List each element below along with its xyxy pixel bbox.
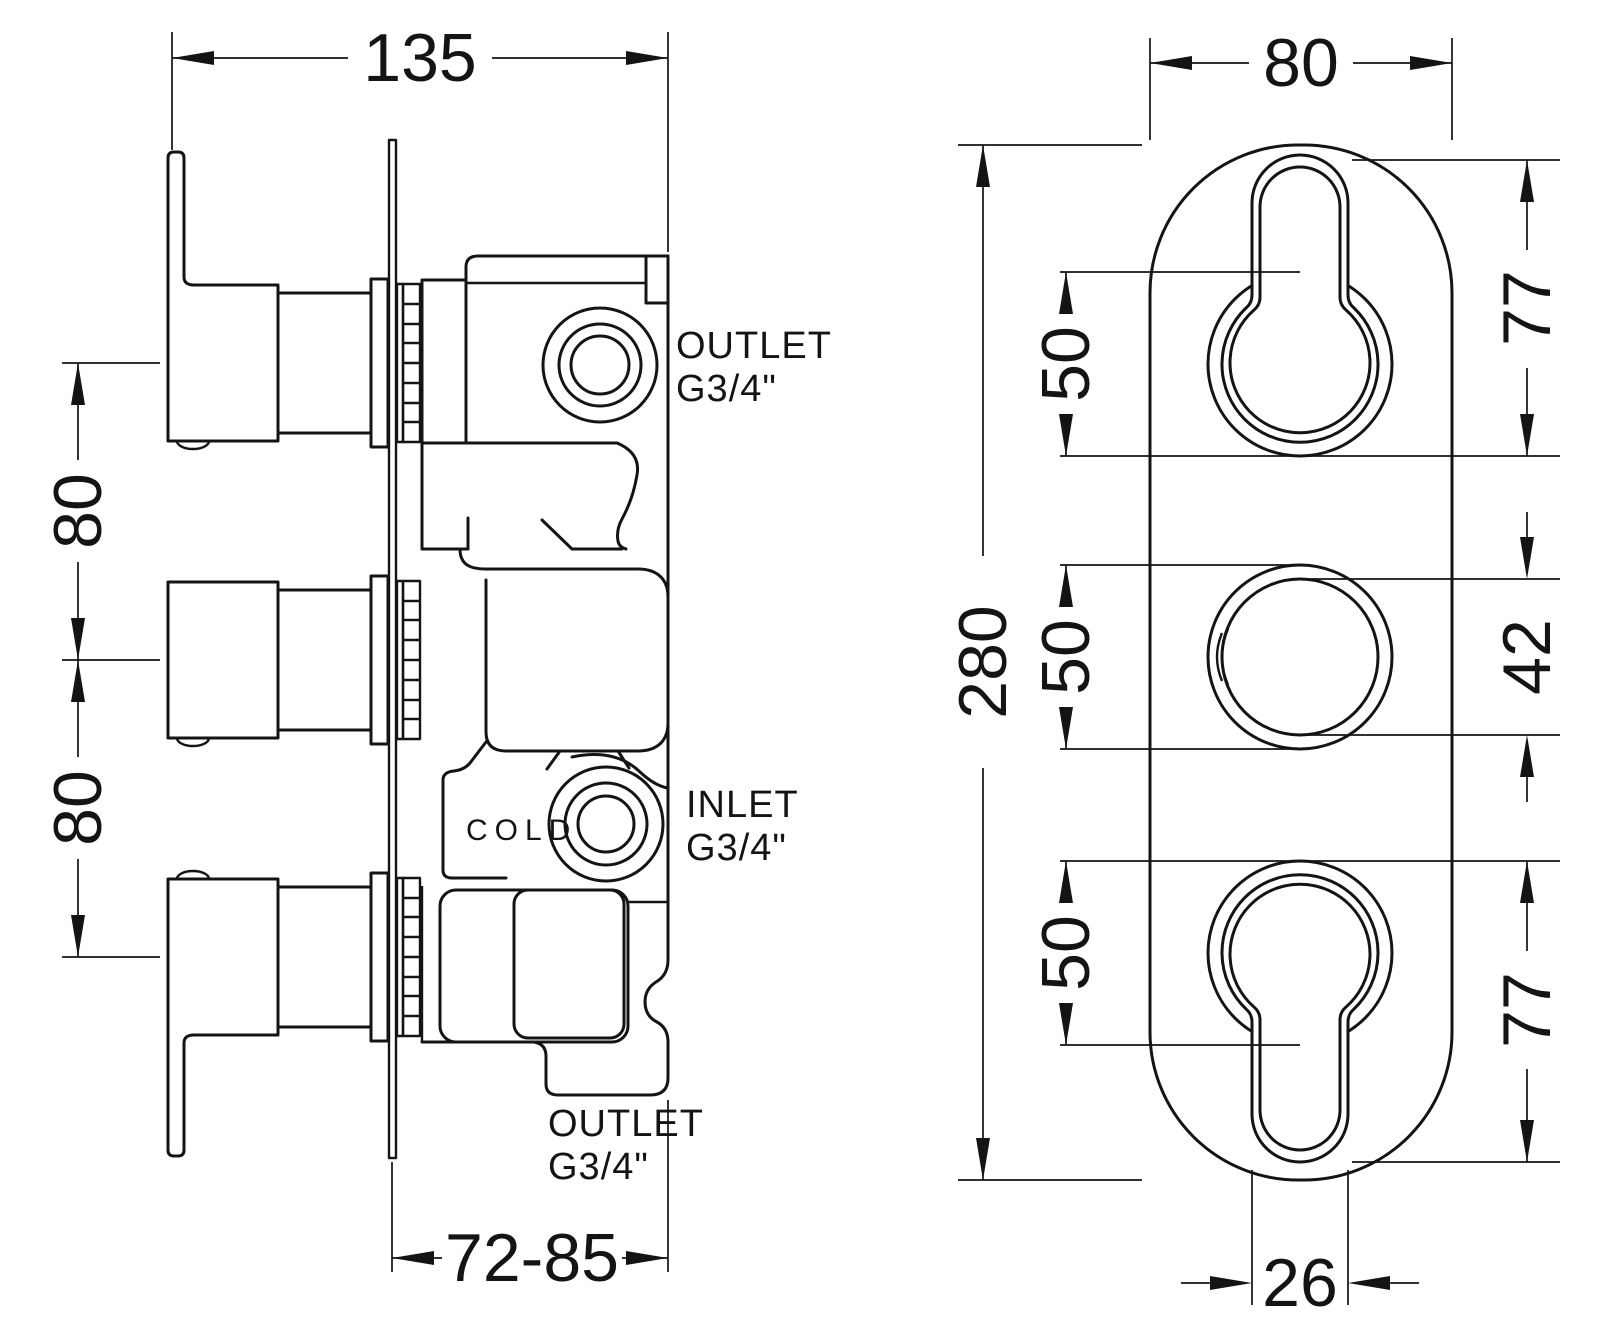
dim-72-85-value: 72-85 — [445, 1220, 619, 1296]
knob-middle-grip-notch — [1217, 629, 1228, 685]
front-view — [1150, 145, 1452, 1180]
outlet-bottom-label-line2: G3/4" — [548, 1146, 649, 1188]
technical-drawing-page: OUTLET G3/4" INLET G3/4" OUTLET G3/4" CO… — [0, 0, 1614, 1329]
side-view: OUTLET G3/4" INLET G3/4" OUTLET G3/4" CO… — [168, 140, 832, 1188]
dim-280-value: 280 — [945, 605, 1021, 718]
dim-50-top-value: 50 — [1028, 326, 1104, 402]
dim-50-bottom-value: 50 — [1028, 915, 1104, 991]
top-housing-outline — [422, 256, 668, 549]
bottom-housing-inner — [514, 890, 624, 1038]
dim-80-plate: 80 — [1150, 25, 1452, 140]
dim-26: 26 — [1181, 1170, 1419, 1321]
handle-top-stem — [278, 293, 371, 433]
upper-transition-curves — [460, 443, 638, 549]
outlet-top-label-line1: OUTLET — [676, 325, 832, 367]
bottom-housing-outer — [440, 890, 628, 1042]
top-outlet-port-inner — [571, 336, 629, 394]
wall-plate — [389, 140, 396, 1158]
handle-bottom-thread-ribs — [403, 898, 420, 1016]
shower-valve-technical-drawing: OUTLET G3/4" INLET G3/4" OUTLET G3/4" CO… — [0, 0, 1614, 1329]
valve-body — [422, 256, 668, 1095]
dim-50-middle-value: 50 — [1028, 619, 1104, 695]
top-housing-corner-cap — [646, 256, 668, 303]
outlet-top-label-line2: G3/4" — [676, 368, 777, 410]
handle-bottom — [168, 871, 420, 1156]
cold-marking: COLD — [466, 814, 577, 847]
handle-top-flange — [371, 279, 388, 447]
dim-26-value: 26 — [1262, 1245, 1338, 1321]
lower-transition-curves — [443, 742, 668, 878]
handle-middle-stem — [278, 590, 371, 730]
outlet-bottom-label-line1: OUTLET — [548, 1103, 704, 1145]
dim-42: 42 — [1302, 512, 1565, 802]
handle-bottom-flange — [371, 873, 388, 1041]
bottom-housing-connector — [422, 886, 668, 1042]
inlet-port-inner — [578, 796, 634, 852]
handle-middle — [168, 576, 420, 746]
dim-80-plate-value: 80 — [1263, 25, 1339, 101]
handle-bottom-body-and-lever — [168, 879, 278, 1156]
dim-80-upper-value: 80 — [40, 473, 116, 549]
handle-middle-thread-ribs — [403, 601, 420, 719]
handle-middle-flange — [371, 576, 388, 744]
inlet-label-line1: INLET — [686, 784, 799, 826]
dim-77-top-value: 77 — [1489, 270, 1565, 346]
handle-top — [168, 152, 420, 449]
dim-80-lower-value: 80 — [40, 770, 116, 846]
handle-top-thread-ribs — [403, 304, 420, 422]
knob-middle-face — [1222, 579, 1378, 735]
dim-135: 135 — [172, 20, 668, 252]
handle-bottom-stem — [278, 887, 371, 1027]
knob-middle-recess — [1208, 565, 1392, 749]
handle-top-body-and-lever — [168, 152, 278, 441]
dim-135-value: 135 — [363, 20, 476, 96]
dim-80-spacing: 80 80 — [40, 363, 160, 957]
inlet-label-line2: G3/4" — [686, 827, 787, 869]
dim-42-value: 42 — [1489, 619, 1565, 695]
cartridge-housing — [460, 549, 668, 751]
dim-77-bottom-value: 77 — [1489, 972, 1565, 1048]
handle-middle-body — [168, 582, 278, 738]
